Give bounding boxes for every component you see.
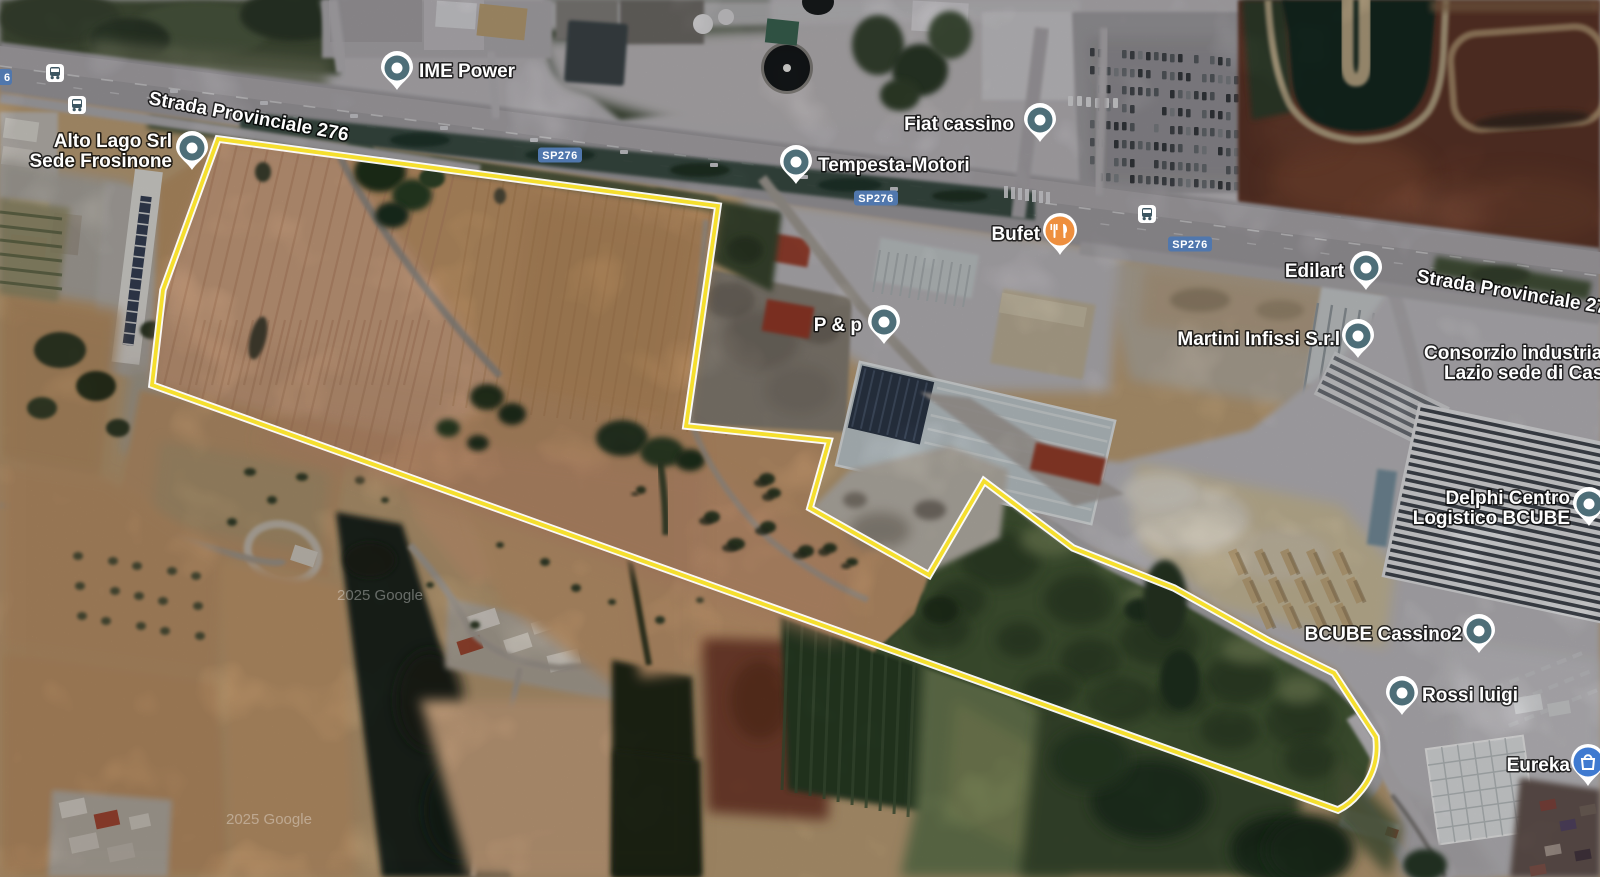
svg-text:P & p: P & p	[814, 315, 862, 336]
svg-text:6: 6	[4, 72, 10, 84]
svg-text:Rossi luigi: Rossi luigi	[1422, 685, 1518, 706]
svg-text:SP276: SP276	[858, 193, 894, 205]
svg-text:Martini Infissi S.r.l: Martini Infissi S.r.l	[1177, 329, 1340, 350]
svg-text:Sede Frosinone: Sede Frosinone	[29, 151, 172, 172]
svg-text:Logistico BCUBE: Logistico BCUBE	[1413, 508, 1570, 529]
svg-text:Tempesta-Motori: Tempesta-Motori	[818, 155, 970, 176]
svg-text:SP276: SP276	[542, 150, 578, 162]
svg-text:Eureka: Eureka	[1507, 755, 1571, 776]
svg-text:Bufet: Bufet	[991, 224, 1040, 245]
svg-text:2025 Google: 2025 Google	[226, 811, 312, 828]
svg-text:2025 Google: 2025 Google	[337, 587, 423, 604]
svg-text:Fiat cassino: Fiat cassino	[904, 114, 1014, 135]
svg-text:Consorzio industriale: Consorzio industriale	[1424, 343, 1600, 364]
svg-text:Edilart: Edilart	[1285, 261, 1345, 282]
svg-text:Lazio sede di Cassino: Lazio sede di Cassino	[1444, 363, 1600, 384]
svg-text:Alto Lago Srl: Alto Lago Srl	[54, 131, 172, 152]
svg-text:Delphi Centro: Delphi Centro	[1445, 488, 1570, 509]
svg-text:IME Power: IME Power	[419, 61, 516, 82]
svg-text:BCUBE Cassino2: BCUBE Cassino2	[1305, 624, 1462, 645]
svg-text:SP276: SP276	[1172, 239, 1208, 251]
